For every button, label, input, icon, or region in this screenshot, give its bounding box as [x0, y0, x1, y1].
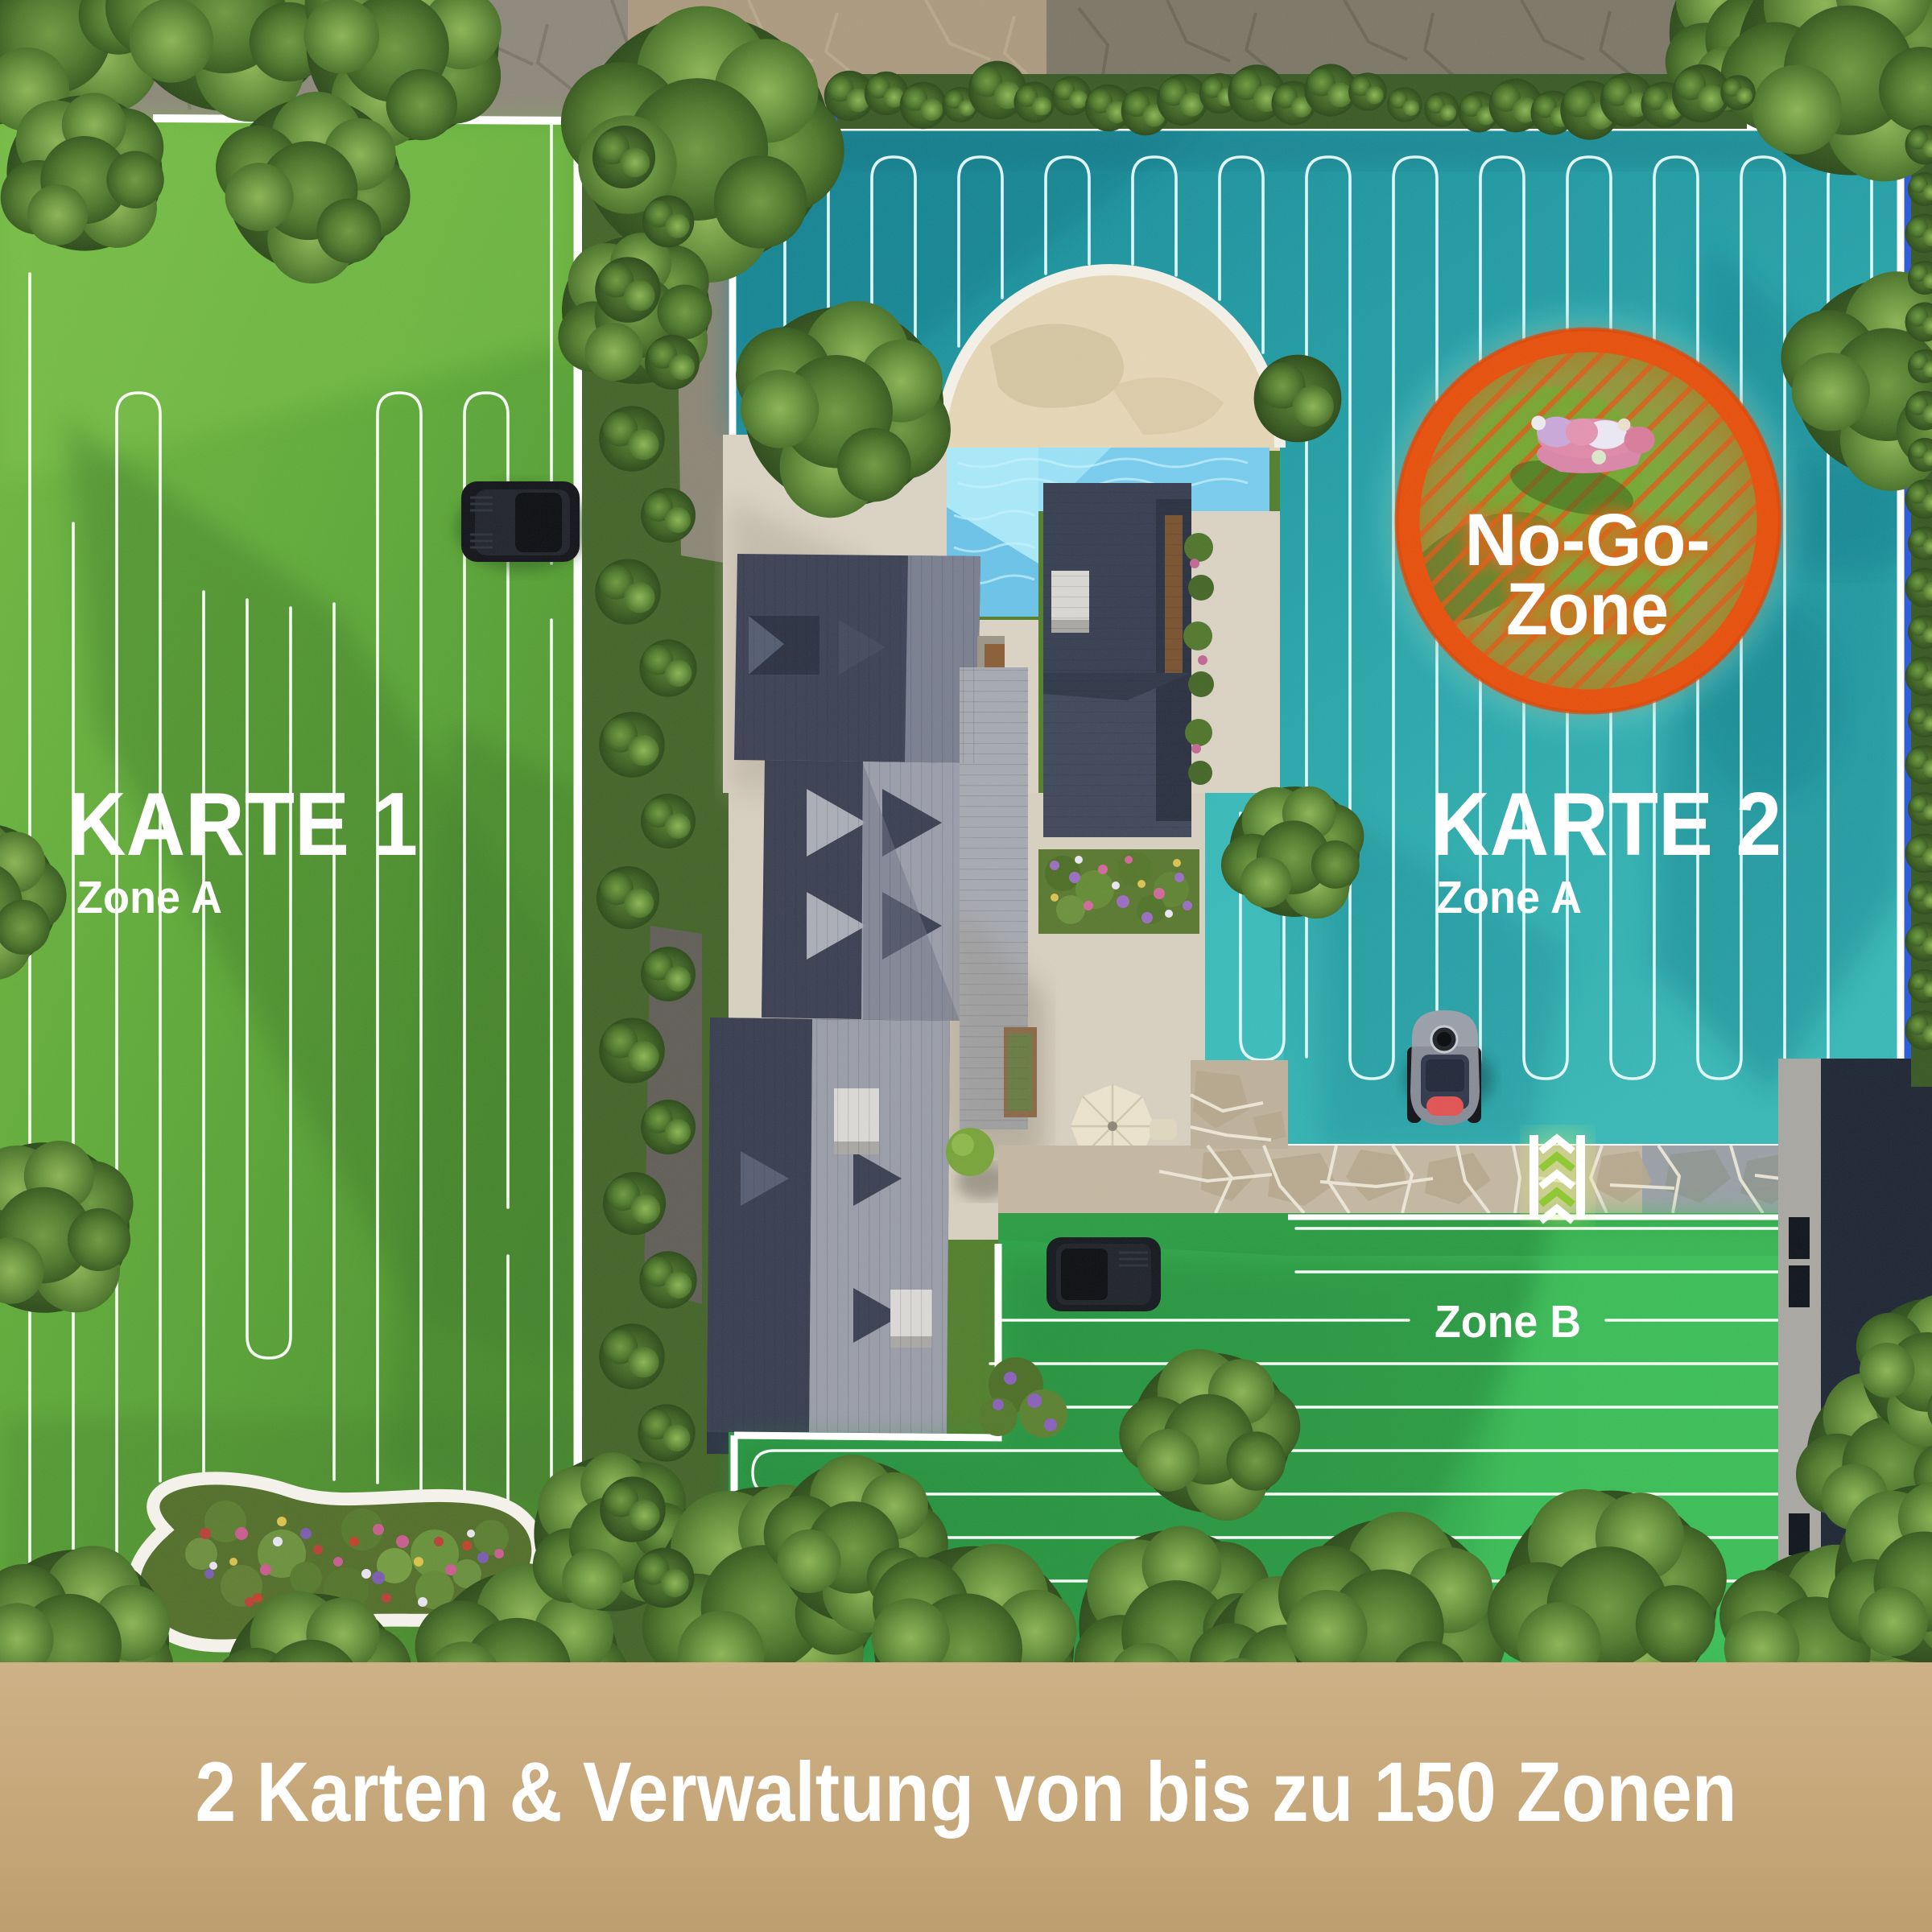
svg-text:2 Karten & Verwaltung von bis: 2 Karten & Verwaltung von bis zu 150 Zon…	[196, 1745, 1737, 1839]
